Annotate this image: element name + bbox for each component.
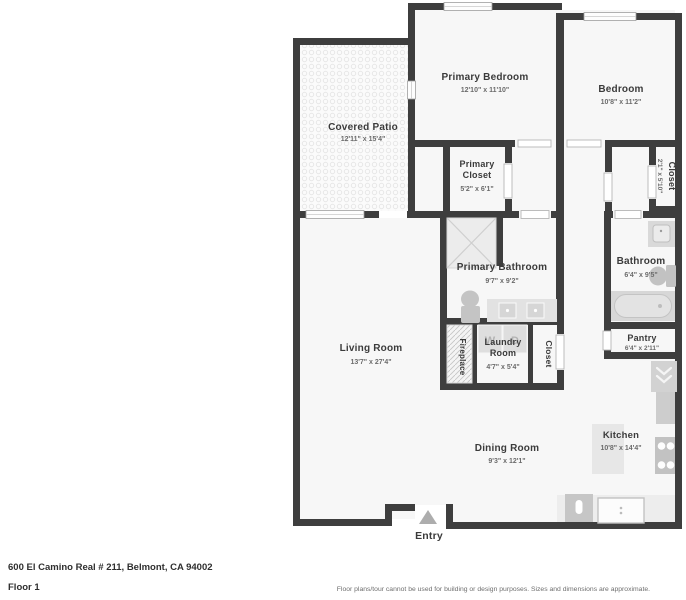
room-dims: 10'8" x 11'2" [601, 99, 642, 106]
wall [293, 519, 392, 526]
wall [443, 383, 564, 390]
entry-arrow-icon [419, 510, 437, 524]
disclaimer-text: Floor plans/tour cannot be used for buil… [337, 586, 650, 593]
floorplan-canvas: W D [0, 0, 686, 600]
bathtub-icon [611, 291, 675, 321]
footer: 600 El Camino Real # 211, Belmont, CA 94… [8, 562, 650, 593]
wall [408, 3, 415, 211]
room-dims: 13'7" x 27'4" [350, 359, 391, 366]
wall [472, 325, 477, 383]
wall [643, 211, 682, 218]
floor-label: Floor 1 [8, 582, 40, 593]
wall [293, 38, 300, 526]
room-name: Living Room [340, 343, 403, 354]
window [444, 3, 492, 11]
room-label-fireplace: Fireplace [458, 339, 467, 376]
room-dims: 4'7" x 5'4" [486, 364, 519, 371]
room-label-hall-closet: Closet [544, 340, 554, 367]
address-text: 600 El Camino Real # 211, Belmont, CA 94… [8, 562, 213, 573]
room-name: Pantry [627, 333, 656, 343]
door [648, 166, 656, 198]
toilet-icon [461, 291, 480, 324]
room-dims: 6'4" x 2'11" [625, 345, 659, 352]
window [408, 81, 416, 99]
stove-icon [655, 437, 675, 474]
window [584, 13, 636, 21]
wall [604, 211, 611, 322]
room-dims: 9'7" x 9'2" [485, 278, 518, 285]
room-label-pantry: Pantry 6'4" x 2'11" [625, 333, 659, 352]
door [556, 335, 564, 369]
door [504, 164, 512, 198]
living-room-floor [300, 218, 415, 519]
wall [604, 322, 682, 329]
kitchen-counter [656, 392, 675, 424]
kitchen-sink-icon [565, 494, 593, 522]
wall [443, 140, 450, 218]
door [603, 331, 611, 350]
wall [505, 147, 512, 163]
wall [605, 147, 612, 172]
wall [556, 13, 564, 325]
room-name: PrimaryCloset [460, 159, 495, 180]
room-name: Primary Bedroom [442, 72, 529, 83]
room-dims: 5'2" x 6'1" [460, 186, 493, 193]
room-label-entry: Entry [415, 530, 443, 542]
door [518, 140, 551, 147]
wall [440, 211, 447, 390]
room-dims: 10'8" x 14'4" [600, 445, 641, 452]
room-name: Primary Bathroom [457, 262, 547, 273]
room-name: Closet [667, 162, 677, 191]
wall [528, 325, 533, 383]
wall [605, 140, 682, 147]
wall [385, 504, 415, 511]
refrigerator-icon [651, 361, 677, 392]
wall [557, 318, 564, 334]
room-dims: 12'11" x 15'4" [341, 136, 386, 143]
floorplan-page: W D [0, 0, 686, 600]
door [604, 173, 612, 201]
room-name: Dining Room [475, 443, 539, 454]
shower-icon [447, 218, 496, 268]
room-label-primary-closet: PrimaryCloset 5'2" x 6'1" [460, 159, 495, 193]
wall [675, 13, 682, 529]
wall [293, 38, 415, 45]
room-name: Bathroom [617, 256, 666, 267]
wall [407, 211, 519, 218]
room-dims: 2'1" x 5'10" [656, 159, 663, 194]
door [567, 140, 601, 147]
dishwasher-icon [598, 498, 644, 523]
wall [293, 211, 307, 218]
room-name: Covered Patio [328, 122, 398, 133]
wall [408, 140, 515, 147]
wall [649, 147, 656, 165]
room-name: LaundryRoom [485, 337, 522, 358]
window [306, 211, 364, 219]
room-name: Kitchen [603, 430, 639, 441]
vanity-sinks-icon [487, 299, 557, 322]
wall [604, 352, 682, 359]
wall [496, 218, 503, 266]
room-name: Fireplace [458, 339, 467, 376]
wall [446, 522, 682, 529]
room-dims: 12'10" x 11'10" [461, 87, 510, 94]
room-name: Bedroom [598, 84, 643, 95]
bathroom-sink-icon [648, 221, 675, 247]
door [615, 211, 641, 219]
room-name: Closet [544, 340, 554, 367]
room-dims: 9'3" x 12'1" [488, 458, 525, 465]
room-dims: 6'4" x 9'5" [624, 272, 657, 279]
wall [551, 211, 564, 218]
room-name: Entry [415, 530, 443, 542]
room-label-laundry-room: LaundryRoom 4'7" x 5'4" [485, 337, 522, 371]
wall [364, 211, 379, 218]
wall [557, 370, 564, 390]
door [521, 211, 549, 219]
